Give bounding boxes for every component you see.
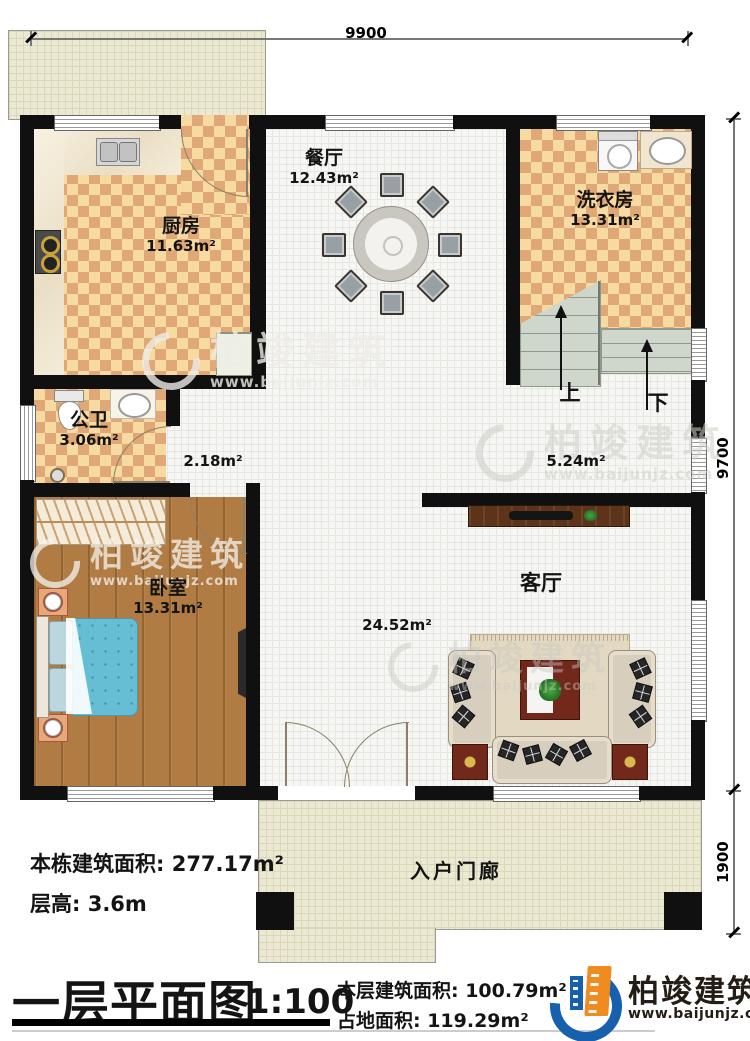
bedroom-north-wall <box>20 483 190 497</box>
dimension-line-right <box>733 118 735 935</box>
wall <box>20 480 34 800</box>
stairs-down-label: 下 <box>640 392 676 415</box>
bedroom-door-leaf <box>243 497 245 553</box>
room-label-bathroom: 公卫 3.06m² <box>49 410 129 449</box>
stair-window <box>691 328 707 382</box>
floor-drain <box>50 468 65 483</box>
nightstand <box>38 588 68 616</box>
wall <box>691 492 705 600</box>
washer-panel <box>599 132 637 141</box>
living-window-right <box>691 600 707 722</box>
room-label-kitchen: 厨房 11.63m² <box>121 216 241 255</box>
porch-label: 入户门廊 <box>376 860 536 882</box>
brand-logo-icon <box>548 960 622 1034</box>
console-plant <box>584 510 597 521</box>
end-table <box>612 744 648 780</box>
wall <box>691 720 705 800</box>
table-plant <box>539 679 561 701</box>
stair-hall-area-label: 5.24m² <box>536 452 616 470</box>
entry-door-opening <box>278 786 415 800</box>
kitchen-window <box>54 115 161 131</box>
hall-window <box>691 438 707 494</box>
corridor-area-label: 2.18m² <box>173 452 253 470</box>
dining-name: 餐厅 <box>264 148 384 169</box>
wall <box>691 115 705 328</box>
wall <box>415 786 493 800</box>
wall <box>453 115 556 129</box>
room-label-dining: 餐厅 12.43m² <box>264 148 384 187</box>
bathroom-area: 3.06m² <box>49 431 129 449</box>
dining-table <box>353 206 429 282</box>
lamp <box>43 592 63 612</box>
wall <box>20 115 34 405</box>
burner <box>41 236 60 255</box>
stair-west-wall <box>506 115 520 385</box>
stairs-up-arrow <box>560 316 562 390</box>
bedroom-name: 卧室 <box>108 578 228 599</box>
coffee-table <box>520 660 580 720</box>
headboard <box>36 616 49 718</box>
bathroom-window <box>20 405 36 482</box>
stairs-up-label: 上 <box>552 382 588 405</box>
logo-tower-orange <box>584 966 611 1016</box>
bathroom-door-leaf <box>113 481 170 483</box>
wall <box>691 380 705 438</box>
laundry-sink <box>649 137 686 165</box>
brand-url: www.baijunjz.com <box>628 1006 750 1022</box>
room-label-laundry: 洗衣房 13.31m² <box>545 190 665 229</box>
dining-chair <box>322 233 346 257</box>
stairs-up-arrowhead <box>555 305 567 318</box>
laundry-area: 13.31m² <box>545 211 665 229</box>
dimension-top-value: 9900 <box>330 24 402 42</box>
patio-area <box>8 30 266 120</box>
fridge <box>216 332 252 376</box>
tv <box>509 511 573 520</box>
wall <box>20 786 67 800</box>
floor-plan-canvas: 9900 9700 1900 <box>0 0 750 1041</box>
living-name-label: 客厅 <box>496 572 586 595</box>
wardrobe <box>36 499 166 545</box>
laundry-sink-counter <box>640 131 692 169</box>
sink-basin <box>100 142 118 162</box>
dining-table-center <box>383 236 403 256</box>
burner <box>41 254 60 273</box>
dimension-right-value: 9700 <box>714 428 732 488</box>
kitchen-area: 11.63m² <box>121 237 241 255</box>
note-floor-height: 层高: 3.6m <box>30 888 147 918</box>
stove <box>35 230 61 274</box>
kitchen-name: 厨房 <box>121 216 241 237</box>
bathroom-name: 公卫 <box>49 410 129 431</box>
kitchen-south-wall <box>20 375 266 389</box>
laundry-name: 洗衣房 <box>545 190 665 211</box>
dining-chair <box>438 233 462 257</box>
entry-door-right-leaf <box>406 722 408 786</box>
end-table <box>452 744 488 780</box>
floor-area-label: 本层建筑面积: 100.79m² <box>337 976 567 1003</box>
bedroom-east-wall <box>246 483 260 800</box>
porch-column <box>664 892 702 930</box>
stairs-down-arrowhead <box>641 339 653 352</box>
brand-logo: 柏竣建筑 www.baijunjz.com <box>548 960 748 1036</box>
porch-step <box>258 928 436 963</box>
living-window-bottom <box>493 786 641 802</box>
nightstand <box>38 714 68 742</box>
wall <box>159 115 181 129</box>
dining-chair <box>380 291 404 315</box>
room-label-bedroom: 卧室 13.31m² <box>108 578 228 617</box>
dining-area: 12.43m² <box>264 169 384 187</box>
bedroom-tv <box>238 628 246 698</box>
kitchen-sink <box>96 138 140 166</box>
tv-console <box>468 505 630 527</box>
lamp <box>43 718 63 738</box>
bedroom-area: 13.31m² <box>108 599 228 617</box>
kitchen-door-leaf <box>246 129 248 196</box>
logo-tower-blue <box>570 976 583 1010</box>
washer-drum <box>607 144 632 169</box>
porch-column <box>256 892 294 930</box>
stairs-stringer <box>598 281 600 385</box>
living-area-label: 24.52m² <box>356 616 438 634</box>
bathroom-east-wall <box>166 389 180 426</box>
dimension-porch-value: 1900 <box>714 832 732 892</box>
bed <box>36 616 136 716</box>
laundry-window <box>556 115 652 131</box>
dining-window <box>325 115 455 131</box>
brand-name: 柏竣建筑 <box>628 966 750 1011</box>
footprint-area-label: 占地面积: 119.29m² <box>337 1006 529 1033</box>
bedroom-window <box>67 786 215 802</box>
washing-machine <box>598 131 638 171</box>
wall <box>249 115 325 129</box>
note-total-area: 本栋建筑面积: 277.17m² <box>30 848 284 878</box>
entry-door-left-leaf <box>285 722 287 786</box>
sink-basin <box>119 142 137 162</box>
